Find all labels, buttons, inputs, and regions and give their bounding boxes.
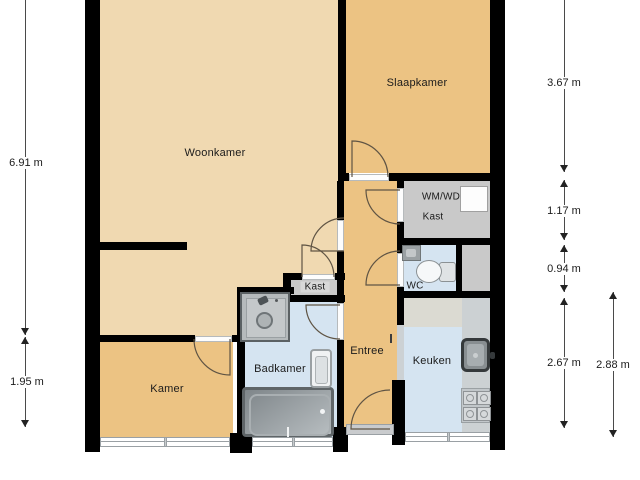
room-entree [344,181,397,430]
room-label-badkamer: Badkamer [254,363,306,375]
wall-segment [288,295,345,302]
bathtub-faucet-icon [320,409,325,414]
wc-sink [402,245,421,261]
room-label-woonkamer: Woonkamer [185,147,246,159]
door-frame-tick [390,334,392,343]
toilet-bowl [416,260,442,283]
door-opening-badkamer [337,303,344,340]
kitchen-counter-top [403,298,462,327]
sink-faucet-icon [490,352,495,359]
front-door-threshold [346,424,394,435]
wall-segment [397,238,490,245]
shower-dot-icon [275,299,278,302]
wall-segment [389,173,490,181]
passage-entree-keuken [397,325,404,380]
dimension-label: 0.94 m [544,263,584,275]
dimension-label: 6.91 m [6,157,46,169]
wall-segment [392,380,405,445]
sink-drain-icon [473,353,478,358]
dimension-label: 2.88 m [593,359,633,371]
bathtub-handle-icon [287,427,289,437]
washbasin [310,349,332,388]
window-kamer [100,437,230,447]
burner-icon [463,407,477,421]
wall-segment [98,335,195,342]
wall-segment [490,0,505,450]
burner-icon [477,391,491,405]
dimension-label: 2.67 m [544,357,584,369]
wall-segment [397,181,404,188]
room-label-slaapkamer: Slaapkamer [387,77,448,89]
door-opening-woonkamer [337,220,344,251]
room-label-wmwd-kast: Kast [423,212,444,223]
bathtub [242,387,334,437]
door-opening-kamer [195,336,232,342]
room-label-kamer: Kamer [150,383,183,395]
wall-segment [98,242,187,250]
room-label-wc: WC [406,281,423,292]
floor-plan: Woonkamer Slaapkamer Kamer Badkamer Entr… [0,0,640,480]
room-label-keuken: Keuken [413,355,452,367]
room-label-entree: Entree [350,345,384,357]
kitchen-sink [461,338,490,372]
wall-segment [335,273,345,280]
wall-segment [337,340,344,432]
door-opening-kast-hal [302,274,335,280]
window-badkamer [252,437,333,447]
wall-segment [338,173,349,181]
dimension-label: 3.67 m [544,77,584,89]
wall-segment [338,0,346,176]
wall-segment [337,181,344,220]
window-keuken [405,432,490,442]
room-keuken [403,327,462,432]
door-opening-slaapkamer [349,174,389,181]
room-label-kast-hal: Kast [301,282,330,293]
wall-segment [283,273,302,280]
washing-machine [460,186,488,212]
room-label-wmwd: WM/WD [422,192,460,203]
closet-right-of-wc [462,245,490,291]
wall-segment [397,291,490,298]
shower-drain-icon [256,312,273,329]
wall-segment [85,0,100,452]
wall-segment [456,245,462,291]
door-opening-wmwd-kast [397,188,404,222]
burner-icon [477,407,491,421]
shower [240,292,290,342]
stove [461,388,490,423]
burner-icon [463,391,477,405]
dimension-label: 1.17 m [544,205,584,217]
dimension-label: 1.95 m [7,376,47,388]
